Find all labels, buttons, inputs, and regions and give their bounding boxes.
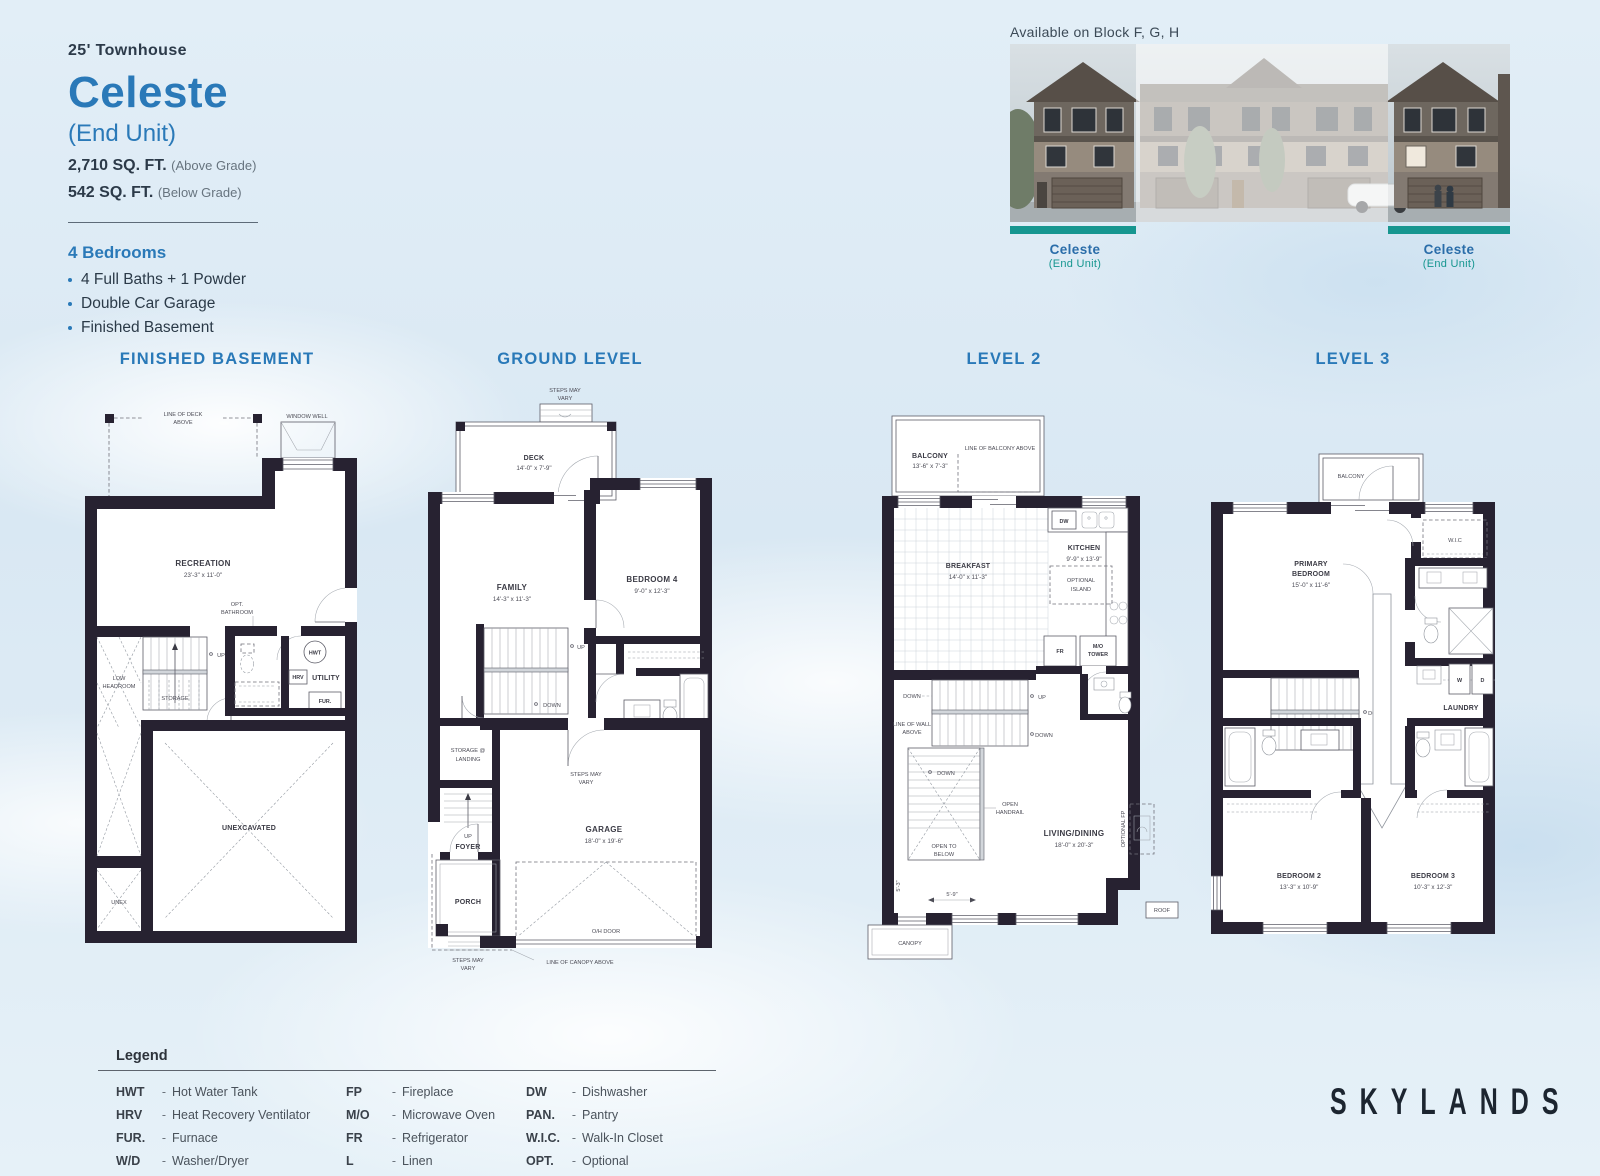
- faded-overlay: [1136, 44, 1388, 222]
- left-unit-highlight-bar: [1010, 226, 1136, 234]
- legend-desc: Refrigerator: [402, 1127, 468, 1150]
- up-label: UP: [1038, 695, 1046, 701]
- level2-balcony: BALCONY 13'-6" x 7'-3" LINE OF BALCONY A…: [892, 416, 1044, 496]
- bullet-icon: [68, 326, 72, 330]
- steps-label: VARY: [558, 396, 573, 402]
- bedroom2-dims: 13'-3" x 10'-9": [1280, 884, 1319, 891]
- legend-row: FUR.-Furnace: [116, 1127, 346, 1150]
- bullet-icon: [68, 302, 72, 306]
- legend-sep: -: [386, 1150, 402, 1173]
- legend-sep: -: [156, 1127, 172, 1150]
- right-unit-name: Celeste: [1384, 242, 1514, 257]
- legend-abbr: OPT.: [526, 1150, 566, 1173]
- level3-balcony: BALCONY: [1319, 454, 1423, 504]
- recreation-dims: 23'-3" x 11'-0": [184, 572, 222, 579]
- legend-sep: -: [156, 1150, 172, 1173]
- page-title: Celeste: [68, 68, 368, 118]
- bedroom4-dims: 9'-0" x 12'-3": [634, 588, 669, 595]
- canopy-line-label: LINE OF CANOPY ABOVE: [546, 960, 614, 966]
- basement-title: FINISHED BASEMENT: [86, 350, 348, 369]
- up-label: UP: [577, 645, 585, 651]
- legend-column: DW-Dishwasher PAN.-Pantry W.I.C.-Walk-In…: [526, 1081, 716, 1174]
- legend-abbr: M/O: [346, 1104, 386, 1127]
- mo-tower-label: M/O: [1093, 644, 1103, 650]
- legend-sep: -: [566, 1127, 582, 1150]
- legend-row: L-Linen: [346, 1150, 526, 1173]
- bedrooms-heading: 4 Bedrooms: [68, 243, 368, 263]
- legend-sep: -: [566, 1150, 582, 1173]
- wall-line-label: ABOVE: [902, 730, 922, 736]
- mo-tower-label: TOWER: [1088, 652, 1108, 658]
- roof-label: ROOF: [1154, 908, 1171, 914]
- feature-item: Double Car Garage: [68, 295, 368, 313]
- steps-label: STEPS MAY: [452, 958, 484, 964]
- legend-abbr: FP: [346, 1081, 386, 1104]
- legend-abbr: W/D: [116, 1150, 156, 1173]
- legend-abbr: FR: [346, 1127, 386, 1150]
- balcony-label: BALCONY: [1338, 474, 1365, 480]
- unexcavated-label: UNEXCAVATED: [222, 825, 276, 832]
- legend-desc: Hot Water Tank: [172, 1081, 257, 1104]
- area-below-grade: 542 SQ. FT. (Below Grade): [68, 184, 368, 202]
- utility-label: UTILITY: [312, 675, 340, 682]
- legend-desc: Linen: [402, 1150, 433, 1173]
- area-above-note: (Above Grade): [171, 158, 256, 173]
- legend-abbr: DW: [526, 1081, 566, 1104]
- deck-dims: 14'-0" x 7'-9": [516, 465, 551, 472]
- low-headroom-label: HEADROOM: [103, 684, 136, 690]
- basement-floorplan: LINE OF DECK ABOVE WINDOW WELL RECREATIO…: [85, 398, 357, 948]
- laundry-label: LAUNDRY: [1443, 705, 1478, 712]
- legend-sep: -: [386, 1081, 402, 1104]
- kitchen-label: KITCHEN: [1068, 545, 1101, 552]
- furnace-label: FUR.: [319, 699, 332, 705]
- primary-bedroom-label: PRIMARY: [1294, 561, 1328, 568]
- kitchen-dims: 9'-9" x 13'-9": [1066, 556, 1101, 563]
- open-below-label: OPEN TO: [932, 844, 958, 850]
- legend-row: M/O-Microwave Oven: [346, 1104, 526, 1127]
- left-unit-subname: (End Unit): [1010, 258, 1140, 270]
- legend-sep: -: [566, 1081, 582, 1104]
- area-above-value: 2,710 SQ. FT.: [68, 157, 167, 174]
- header-divider: [68, 222, 258, 223]
- breakfast-label: BREAKFAST: [946, 563, 991, 570]
- balcony-label: BALCONY: [912, 453, 948, 460]
- legend-abbr: PAN.: [526, 1104, 566, 1127]
- legend-desc: Optional: [582, 1150, 629, 1173]
- wall-line-label: LINE OF WALL: [893, 722, 931, 728]
- header: 25' Townhouse Celeste (End Unit) 2,710 S…: [68, 42, 368, 337]
- breakfast-dims: 14'-0" x 11'-3": [949, 574, 987, 581]
- roof-note: ROOF: [1146, 902, 1178, 918]
- legend-sep: -: [386, 1104, 402, 1127]
- bedroom3-label: BEDROOM 3: [1411, 873, 1455, 880]
- canopy-label: CANOPY: [898, 941, 922, 947]
- legend-sep: -: [156, 1081, 172, 1104]
- legend: Legend HWT-Hot Water Tank HRV-Heat Recov…: [98, 1048, 716, 1174]
- down-label: DOWN: [903, 694, 921, 700]
- right-unit-label: Celeste (End Unit): [1384, 242, 1514, 270]
- storage-label: STORAGE: [161, 696, 189, 702]
- balcony-dims: 13'-6" x 7'-3": [912, 463, 947, 470]
- island-label: ISLAND: [1071, 587, 1091, 593]
- feature-item: Finished Basement: [68, 319, 368, 337]
- legend-row: W/D-Washer/Dryer: [116, 1150, 346, 1173]
- legend-divider: [98, 1070, 716, 1071]
- hrv-label: HRV: [292, 675, 304, 681]
- down-label: DOWN: [937, 771, 955, 777]
- elevation-rendering: [1010, 44, 1510, 234]
- garage-label: GARAGE: [586, 825, 623, 834]
- opt-bathroom-label: OPT.: [231, 602, 244, 608]
- down-label: DOWN: [543, 703, 561, 709]
- low-headroom-label: LOW: [113, 676, 126, 682]
- brochure-page: 25' Townhouse Celeste (End Unit) 2,710 S…: [0, 0, 1600, 1176]
- legend-desc: Washer/Dryer: [172, 1150, 249, 1173]
- living-dining-dims: 18'-0" x 20'-3": [1055, 842, 1094, 849]
- garage-dims: 18'-0" x 19'-6": [585, 838, 624, 845]
- legend-abbr: HRV: [116, 1104, 156, 1127]
- island-label: OPTIONAL: [1067, 578, 1095, 584]
- handrail-label: HANDRAIL: [996, 810, 1024, 816]
- legend-desc: Fireplace: [402, 1081, 453, 1104]
- steps-label: VARY: [461, 966, 476, 972]
- storage-landing-label: LANDING: [456, 757, 481, 763]
- legend-row: HRV-Heat Recovery Ventilator: [116, 1104, 346, 1127]
- window-well: WINDOW WELL: [281, 414, 335, 458]
- legend-row: HWT-Hot Water Tank: [116, 1081, 346, 1104]
- bedroom4-label: BEDROOM 4: [626, 575, 677, 584]
- steps-label: STEPS MAY: [549, 388, 581, 394]
- recreation-label: RECREATION: [175, 559, 230, 568]
- porch-label: PORCH: [455, 899, 481, 906]
- wic-label: W.I.C: [1448, 538, 1462, 544]
- ground-title: GROUND LEVEL: [430, 350, 710, 369]
- fr-label: FR: [1056, 649, 1063, 655]
- legend-row: FP-Fireplace: [346, 1081, 526, 1104]
- balcony-line-label: LINE OF BALCONY ABOVE: [965, 446, 1036, 452]
- deck-line-label: LINE OF DECK: [164, 412, 203, 418]
- oh-door-label: O/H DOOR: [592, 929, 620, 935]
- legend-abbr: HWT: [116, 1081, 156, 1104]
- legend-desc: Walk-In Closet: [582, 1127, 663, 1150]
- open-below-label: BELOW: [934, 852, 955, 858]
- feature-label: Double Car Garage: [81, 295, 215, 313]
- legend-column: HWT-Hot Water Tank HRV-Heat Recovery Ven…: [116, 1081, 346, 1174]
- unex-label: UNEX: [111, 900, 127, 906]
- dw-label: DW: [1060, 519, 1070, 525]
- legend-column: FP-Fireplace M/O-Microwave Oven FR-Refri…: [346, 1081, 526, 1174]
- up-label: UP: [464, 834, 472, 840]
- legend-sep: -: [156, 1104, 172, 1127]
- legend-row: OPT.-Optional: [526, 1150, 716, 1173]
- legend-abbr: FUR.: [116, 1127, 156, 1150]
- legend-desc: Dishwasher: [582, 1081, 647, 1104]
- deck-steps: STEPS MAY VARY: [540, 388, 592, 422]
- area-above-grade: 2,710 SQ. FT. (Above Grade): [68, 157, 368, 175]
- level2-title: LEVEL 2: [866, 350, 1142, 369]
- legend-row: FR-Refrigerator: [346, 1127, 526, 1150]
- legend-abbr: W.I.C.: [526, 1127, 566, 1150]
- page-subtitle: (End Unit): [68, 120, 368, 148]
- bullet-icon: [68, 278, 72, 282]
- legend-sep: -: [566, 1104, 582, 1127]
- legend-desc: Furnace: [172, 1127, 218, 1150]
- level3-floorplan: BALCONY W.I.C PRIMARY BEDROOM 15'-0" x 1…: [1211, 446, 1495, 946]
- left-unit-name: Celeste: [1010, 242, 1140, 257]
- foyer-label: FOYER: [455, 844, 480, 851]
- steps-label: STEPS MAY: [570, 772, 602, 778]
- brand-logo: SKYLANDS: [1330, 1081, 1520, 1125]
- type-label: 25' Townhouse: [68, 42, 368, 60]
- feature-label: 4 Full Baths + 1 Powder: [81, 271, 246, 289]
- legend-sep: -: [386, 1127, 402, 1150]
- hwt-label: HWT: [309, 651, 322, 657]
- primary-bedroom-label: BEDROOM: [1292, 571, 1330, 578]
- deck-line-label: ABOVE: [173, 420, 193, 426]
- legend-desc: Heat Recovery Ventilator: [172, 1104, 310, 1127]
- opt-bathroom-label: BATHROOM: [221, 610, 253, 616]
- feature-label: Finished Basement: [81, 319, 214, 337]
- steps-label: VARY: [579, 780, 594, 786]
- availability-note: Available on Block F, G, H: [1010, 24, 1179, 40]
- feature-list: 4 Full Baths + 1 Powder Double Car Garag…: [68, 271, 368, 337]
- level3-title: LEVEL 3: [1212, 350, 1494, 369]
- dimension-label: 5'-9": [946, 892, 957, 898]
- up-label: UP: [217, 653, 225, 659]
- living-dining-label: LIVING/DINING: [1044, 829, 1105, 838]
- bedroom2-label: BEDROOM 2: [1277, 873, 1321, 880]
- legend-heading: Legend: [116, 1048, 716, 1064]
- left-unit-label: Celeste (End Unit): [1010, 242, 1140, 270]
- legend-abbr: L: [346, 1150, 386, 1173]
- primary-bedroom-dims: 15'-0" x 11'-6": [1292, 582, 1330, 589]
- handrail-label: OPEN: [1002, 802, 1018, 808]
- right-unit-highlight-bar: [1388, 226, 1510, 234]
- line-of-deck-above: LINE OF DECK ABOVE: [105, 412, 262, 496]
- storage-landing-label: STORAGE @: [451, 748, 486, 754]
- legend-row: W.I.C.-Walk-In Closet: [526, 1127, 716, 1150]
- down-label: DOWN: [1035, 733, 1053, 739]
- level2-floorplan: BALCONY 13'-6" x 7'-3" LINE OF BALCONY A…: [868, 408, 1180, 953]
- area-below-value: 542 SQ. FT.: [68, 184, 153, 201]
- legend-row: PAN.-Pantry: [526, 1104, 716, 1127]
- canopy: CANOPY: [868, 925, 952, 959]
- dimension-label: 5'-3": [896, 880, 902, 891]
- area-below-note: (Below Grade): [158, 185, 242, 200]
- optional-fp-label: OPTIONAL FP: [1121, 810, 1127, 847]
- ground-floorplan: STEPS MAY VARY DECK 14'-0" x 7'-9" FAMIL…: [428, 384, 712, 976]
- dryer-label: D: [1481, 678, 1485, 684]
- legend-desc: Pantry: [582, 1104, 618, 1127]
- window-well-label: WINDOW WELL: [286, 414, 327, 420]
- right-unit-subname: (End Unit): [1384, 258, 1514, 270]
- legend-desc: Microwave Oven: [402, 1104, 495, 1127]
- family-dims: 14'-3" x 11'-3": [493, 596, 531, 603]
- bedroom3-dims: 10'-3" x 12'-3": [1414, 884, 1453, 891]
- deck-label: DECK: [524, 455, 545, 462]
- family-label: FAMILY: [497, 583, 528, 592]
- feature-item: 4 Full Baths + 1 Powder: [68, 271, 368, 289]
- legend-row: DW-Dishwasher: [526, 1081, 716, 1104]
